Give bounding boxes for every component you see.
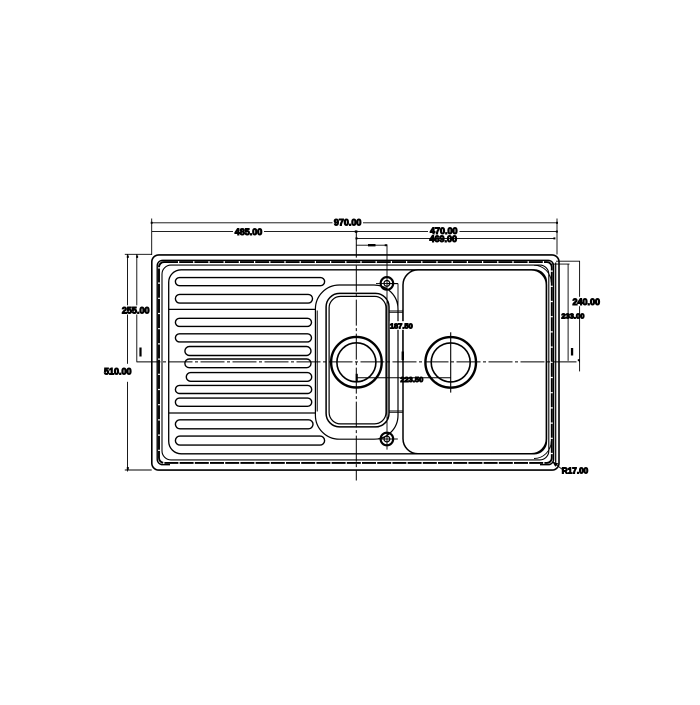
svg-text:223.50: 223.50 <box>400 375 423 384</box>
svg-text:970.00: 970.00 <box>334 218 362 228</box>
svg-text:510.00: 510.00 <box>104 366 132 376</box>
svg-text:187.50: 187.50 <box>390 321 413 330</box>
svg-text:469.00: 469.00 <box>430 234 458 244</box>
svg-text:R17.00: R17.00 <box>562 467 589 476</box>
svg-text:233.00: 233.00 <box>561 312 584 321</box>
svg-text:255.00: 255.00 <box>122 305 150 315</box>
svg-text:240.00: 240.00 <box>573 297 601 307</box>
svg-text:485.00: 485.00 <box>235 227 263 237</box>
